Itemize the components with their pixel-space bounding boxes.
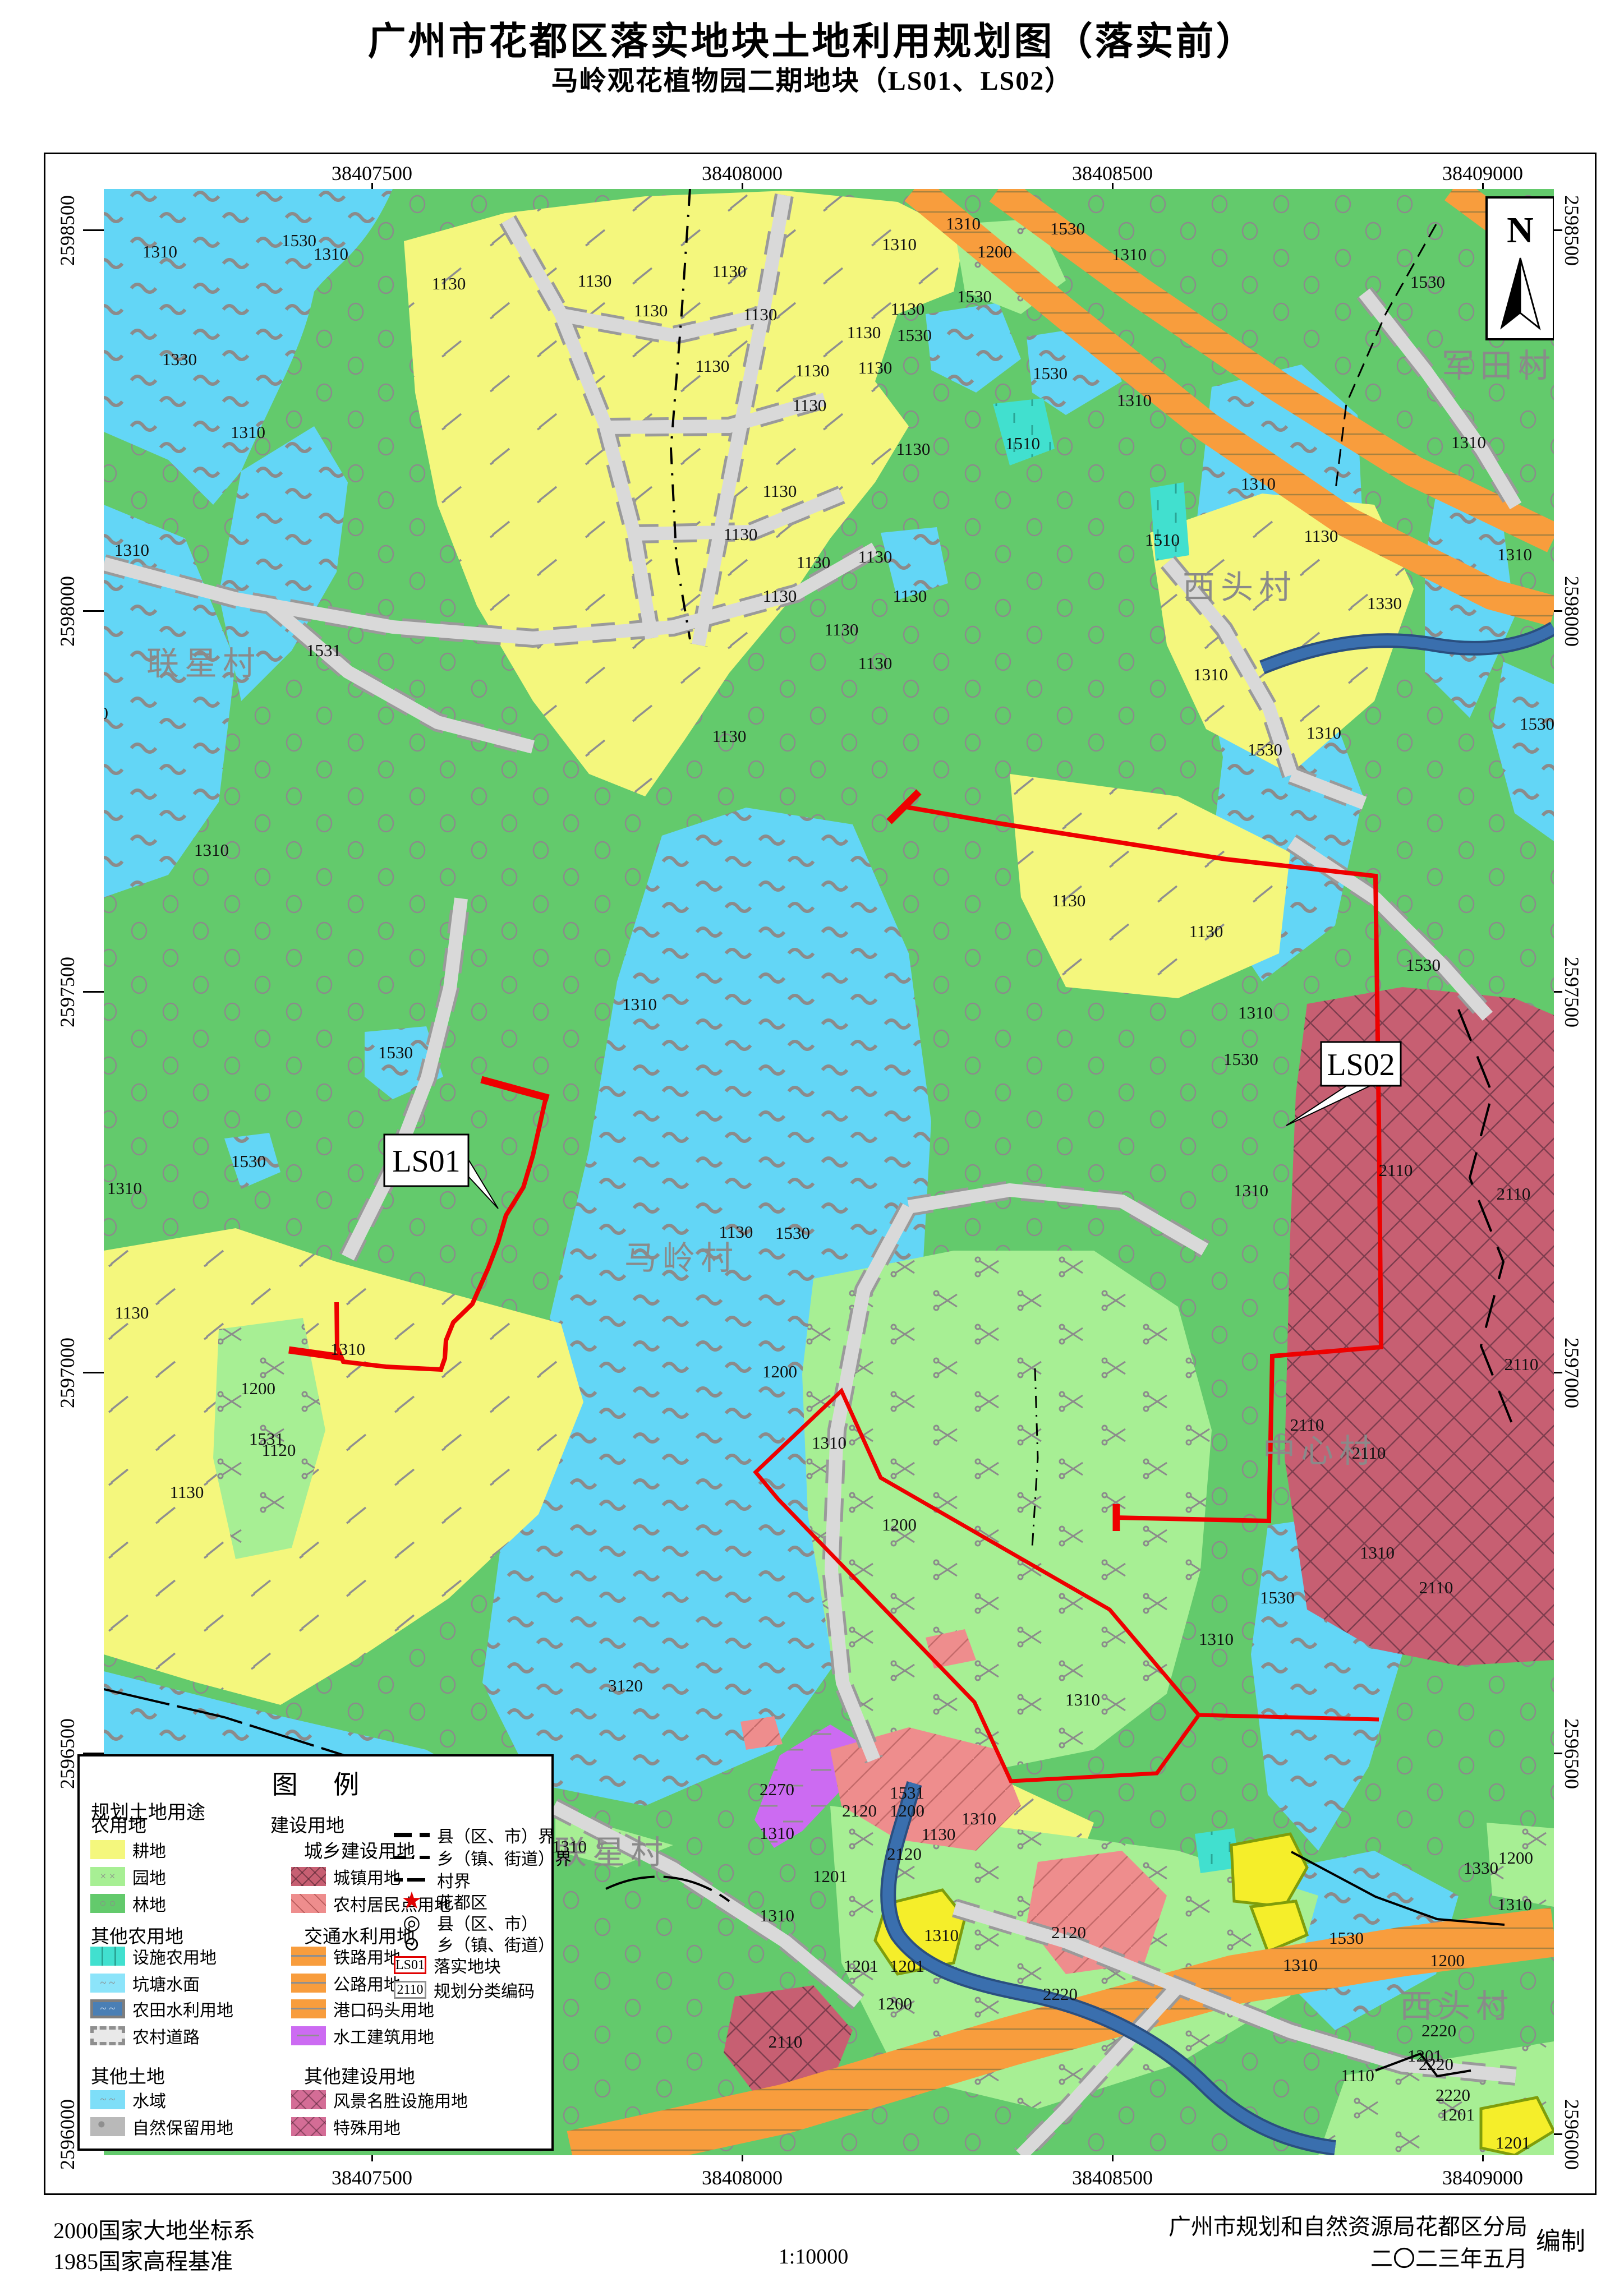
legend-item-pond: ~ ~坑塘水面 xyxy=(90,1972,200,1994)
landuse-code-label: 1530 xyxy=(775,1223,810,1243)
legend-swatch-forest: ○ ○ xyxy=(90,1894,125,1913)
legend-item-label: 规划分类编码 xyxy=(434,1977,535,2002)
landuse-code-label: 1201 xyxy=(1496,2133,1530,2152)
landuse-code-label: 1530 xyxy=(378,1043,413,1062)
landuse-code-label: 1200 xyxy=(877,1994,912,2013)
landuse-code-label: 1310 xyxy=(194,840,229,860)
landuse-code-label: 1130 xyxy=(724,524,758,544)
map-scale: 1:10000 xyxy=(718,2244,909,2269)
legend-swatch-irrigation: ~ ~ xyxy=(90,1999,125,2018)
landuse-code-label: 1530 xyxy=(1248,740,1282,759)
landuse-code-label: 1510 xyxy=(1005,434,1040,453)
landuse-code-label: 1201 xyxy=(1407,2046,1442,2066)
landuse-code-label: 1130 xyxy=(170,1482,204,1502)
legend-item-town-seat: ⊙乡（镇、街道） xyxy=(394,1933,555,1955)
landuse-code-label: 1310 xyxy=(1283,1955,1318,1975)
grid-y-label-left: 2596000 xyxy=(56,2084,79,2185)
legend-header-row: 其他土地 xyxy=(91,2064,165,2086)
legend-section-建设用地: 建设用地 xyxy=(270,1810,344,1837)
landuse-code-label: 1310 xyxy=(142,242,177,261)
landuse-code-label: 2220 xyxy=(1436,2085,1470,2105)
grid-x-label-top: 38409000 xyxy=(1432,162,1533,185)
landuse-code-label: 1310 xyxy=(314,244,348,264)
landuse-code-label: 2110 xyxy=(769,2032,803,2051)
legend-item-label: 县（区、市）界 xyxy=(437,1823,555,1847)
legend-item-nature: 自然保留用地 xyxy=(90,2115,233,2138)
landuse-code-label: 1120 xyxy=(262,1440,296,1460)
landuse-code-label: 1530 xyxy=(1520,714,1554,734)
landuse-code-label: 1530 xyxy=(1329,1928,1364,1948)
legend-item-label: 坑塘水面 xyxy=(132,1971,200,1995)
landuse-code-label: 2110 xyxy=(1419,1578,1453,1597)
legend-item-label: 特殊用地 xyxy=(333,2114,401,2139)
grid-x-label-bottom: 38407500 xyxy=(321,2166,422,2189)
legend-line-village xyxy=(394,1878,430,1882)
landuse-code-label: 1130 xyxy=(922,1824,956,1844)
legend-item-county-seat: ◎县（区、市） xyxy=(394,1911,538,1934)
landuse-code-label: 1130 xyxy=(1052,891,1086,910)
landuse-code-label: 1130 xyxy=(115,1303,149,1322)
landuse-code-label: 1310 xyxy=(1199,1629,1234,1649)
grid-x-label-bottom: 38408000 xyxy=(692,2166,793,2189)
landuse-code-label: 1130 xyxy=(858,358,892,377)
village-label: 军田村 xyxy=(1442,348,1554,384)
legend-item-scenic: 风景名胜设施用地 xyxy=(291,2088,468,2111)
map-date: 二〇二三年五月 xyxy=(1370,2240,1528,2273)
landuse-code-label: 1530 xyxy=(1223,1049,1258,1069)
legend-section-其他建设用地: 其他建设用地 xyxy=(304,2062,415,2088)
village-label: 西头村 xyxy=(1183,569,1297,606)
landuse-code-label: 2110 xyxy=(1379,1160,1413,1180)
legend-item-village: 村界 xyxy=(394,1869,471,1891)
grid-tick xyxy=(83,229,105,231)
landuse-code-label: 1530 xyxy=(957,287,992,306)
landuse-code-label: 1200 xyxy=(977,242,1012,261)
legend-item-code: 2110规划分类编码 xyxy=(394,1979,535,2001)
landuse-code-label: 1310 xyxy=(882,234,917,254)
landuse-code-label: 1130 xyxy=(893,586,927,606)
legend-item-special: 特殊用地 xyxy=(291,2115,401,2138)
landuse-code-label: 1201 xyxy=(813,1866,848,1886)
legend-item-plot: LS01落实地块 xyxy=(394,1954,501,1976)
landuse-code-label: 1130 xyxy=(712,261,747,281)
legend-item-label: 自然保留用地 xyxy=(132,2114,233,2139)
landuse-code-label: 1530 xyxy=(1406,955,1441,975)
legend-item-label: 城镇用地 xyxy=(333,1864,401,1889)
legend-item-label: 水工建筑用地 xyxy=(333,2023,434,2048)
legend-item-cultivated: 耕地 xyxy=(90,1838,166,1861)
landuse-code-label: 1310 xyxy=(1193,665,1228,684)
legend-header-row: 建设用地 xyxy=(270,1813,344,1835)
grid-y-label-right: 2598000 xyxy=(1560,561,1584,662)
legend-item-label: 农村道路 xyxy=(132,2023,200,2048)
grid-y-label-right: 2598500 xyxy=(1560,180,1584,281)
landuse-code-label: 1130 xyxy=(634,301,668,320)
legend-item-label: 林地 xyxy=(132,1891,166,1916)
landuse-code-label: 1130 xyxy=(763,586,797,606)
legend-item-road: 农村道路 xyxy=(90,2025,200,2047)
landuse-code-label: 1510 xyxy=(1145,530,1180,550)
legend-item-hydraulic: 水工建筑用地 xyxy=(291,2025,434,2047)
legend-swatch-highway xyxy=(291,1974,326,1993)
landuse-code-label: 1200 xyxy=(762,1362,797,1381)
legend-swatch-scenic xyxy=(291,2090,326,2109)
landuse-code-label: 1310 xyxy=(330,1339,365,1359)
legend-item-forest: ○ ○林地 xyxy=(90,1892,166,1915)
grid-x-label-top: 38408000 xyxy=(692,162,793,185)
grid-tick xyxy=(83,991,105,993)
landuse-code-label: 1310 xyxy=(1241,474,1276,494)
landuse-code-label: 1130 xyxy=(825,620,859,639)
legend-item-port: 港口码头用地 xyxy=(291,1998,434,2020)
grid-y-label-right: 2597500 xyxy=(1560,942,1584,1043)
landuse-code-label: 1330 xyxy=(1464,1858,1498,1878)
landuse-code-label: 1130 xyxy=(793,395,827,415)
legend-swatch-nature xyxy=(90,2117,125,2136)
landuse-code-label: 1530 xyxy=(1050,219,1085,238)
landuse-code-label: 1130 xyxy=(797,552,831,572)
landuse-code-label: 1310 xyxy=(1112,245,1147,264)
landuse-code-label: 1310 xyxy=(231,422,265,442)
landuse-code-label: 1310 xyxy=(812,1433,846,1453)
landuse-code-label: 1310 xyxy=(114,540,149,560)
landuse-code-label: 2220 xyxy=(1043,1984,1078,2004)
landuse-code-label: 1130 xyxy=(578,271,612,291)
landuse-code-label: 2110 xyxy=(1497,1184,1531,1204)
legend-item-label: 风景名胜设施用地 xyxy=(333,2087,468,2112)
landuse-code-label: 1130 xyxy=(896,439,931,459)
legend-item-label: 乡（镇、街道）界 xyxy=(437,1845,572,1870)
landuse-code-label: 1130 xyxy=(719,1222,753,1242)
grid-y-label-right: 2597000 xyxy=(1560,1322,1584,1423)
legend-item-township: 乡（镇、街道）界 xyxy=(394,1846,572,1869)
legend-swatch-pond: ~ ~ xyxy=(90,1974,125,1993)
landuse-code-label: 1310 xyxy=(1065,1690,1100,1709)
plot-callout-label: LS02 xyxy=(1327,1048,1395,1082)
legend-swatch-waterbody: ~ ~ xyxy=(90,2090,125,2109)
landuse-code-label: 2110 xyxy=(1290,1415,1324,1435)
landuse-code-label: 1130 xyxy=(1304,526,1338,546)
landuse-code-label: 1130 xyxy=(743,305,778,324)
legend-line-township xyxy=(394,1856,430,1859)
legend-item-label: 水域 xyxy=(132,2087,166,2112)
legend-box-plot: LS01 xyxy=(394,1956,426,1974)
legend-item-county: 县（区、市）界 xyxy=(394,1824,555,1846)
landuse-code-label: 1200 xyxy=(241,1378,275,1398)
village-label: 联星村 xyxy=(146,646,261,682)
north-arrow: N xyxy=(1487,197,1554,339)
legend-line-county xyxy=(394,1833,430,1837)
legend-item-star: ★花都区 xyxy=(394,1890,487,1912)
legend-item-highway: 公路用地 xyxy=(291,1972,401,1994)
grid-y-label-left: 2598000 xyxy=(56,561,79,662)
legend-swatch-port xyxy=(291,1999,326,2018)
datum-line1: 2000国家大地坐标系 xyxy=(53,2212,255,2245)
legend-swatch-special xyxy=(291,2117,326,2136)
legend-swatch-facility xyxy=(90,1947,125,1966)
landuse-code-label: 1310 xyxy=(1117,390,1152,410)
landuse-code-label: 1130 xyxy=(696,356,730,376)
legend-swatch-orchard: × × xyxy=(90,1867,125,1886)
village-label: 西头村 xyxy=(1400,1988,1514,2025)
legend-swatch-cultivated xyxy=(90,1840,125,1859)
landuse-code-label: 1130 xyxy=(712,726,747,746)
landuse-code-label: 1310 xyxy=(622,994,657,1014)
landuse-code-label: 1310 xyxy=(1306,723,1341,743)
landuse-code-label: 1530 xyxy=(282,230,316,250)
landuse-code-label: 1130 xyxy=(795,361,830,380)
landuse-code-label: 3120 xyxy=(608,1676,643,1695)
landuse-code-label: 1110 xyxy=(1341,2066,1374,2085)
landuse-code-label: 1310 xyxy=(1234,1181,1268,1200)
landuse-code-label: 2110 xyxy=(1505,1354,1539,1374)
landuse-code-label: 1310 xyxy=(961,1809,996,1828)
legend-swatch-road xyxy=(90,2026,125,2045)
landuse-code-label: 1200 xyxy=(882,1515,917,1534)
grid-y-label-right: 2596500 xyxy=(1560,1703,1584,1804)
legend-item-label: 农田水利用地 xyxy=(132,1997,233,2021)
grid-y-label-right: 2596000 xyxy=(1560,2084,1584,2185)
landuse-code-label: 1130 xyxy=(858,547,892,566)
legend-panel: 图 例 规划土地用途 农用地耕地× ×园地○ ○林地其他农用地设施农用地~ ~坑… xyxy=(77,1754,554,2151)
landuse-code-label: 1130 xyxy=(763,481,797,501)
landuse-code-label: 1310 xyxy=(1497,545,1532,564)
landuse-code-label: 2120 xyxy=(842,1801,877,1820)
grid-y-label-left: 2597500 xyxy=(56,942,79,1043)
grid-x-label-top: 38408500 xyxy=(1062,162,1163,185)
grid-tick xyxy=(83,610,105,612)
landuse-code-label: 1310 xyxy=(924,1925,959,1945)
landuse-code-label: 1310 xyxy=(107,1178,142,1198)
plot-callout-label: LS01 xyxy=(392,1144,460,1179)
landuse-code-label: 1531 xyxy=(890,1783,924,1802)
svg-text:N: N xyxy=(1507,210,1534,251)
landuse-code-label: 1310 xyxy=(1238,1003,1273,1022)
compiled-by: 编制 xyxy=(1536,2221,1585,2257)
legend-item-label: 园地 xyxy=(132,1864,166,1889)
page-title: 广州市花都区落实地块土地利用规划图（落实前） xyxy=(0,10,1624,66)
landuse-code-label: 1130 xyxy=(432,274,466,293)
landuse-code-label: 1201 xyxy=(844,1956,878,1976)
grid-x-label-bottom: 38408500 xyxy=(1062,2166,1163,2189)
landuse-code-label: 1530 xyxy=(1260,1588,1295,1607)
legend-item-waterbody: ~ ~水域 xyxy=(90,2088,166,2111)
grid-x-label-bottom: 38409000 xyxy=(1432,2166,1533,2189)
landuse-code-label: 1530 xyxy=(1033,363,1068,383)
legend-header-row: 农用地 xyxy=(91,1813,146,1835)
legend-item-label: 公路用地 xyxy=(333,1971,401,1995)
landuse-code-label: 1130 xyxy=(891,299,925,319)
legend-header-row: 其他农用地 xyxy=(91,1924,183,1946)
landuse-code-label: 1330 xyxy=(1367,593,1402,613)
landuse-code-label: 1130 xyxy=(1189,921,1223,941)
landuse-code-label: 1310 xyxy=(760,1823,794,1843)
landuse-code-label: 1530 xyxy=(231,1151,266,1171)
landuse-code-label: 2120 xyxy=(887,1844,922,1864)
grid-x-label-top: 38407500 xyxy=(321,162,422,185)
landuse-code-label: 1531 xyxy=(306,640,341,660)
legend-item-irrigation: ~ ~农田水利用地 xyxy=(90,1998,233,2020)
village-label: 马岭村 xyxy=(624,1240,739,1276)
legend-item-rail: 铁路用地 xyxy=(291,1945,401,1967)
legend-box-code: 2110 xyxy=(394,1981,426,1999)
legend-item-label: 设施农用地 xyxy=(132,1944,217,1968)
landuse-code-label: 2110 xyxy=(1352,1443,1386,1463)
landuse-code-label: 2120 xyxy=(1051,1922,1086,1942)
grid-y-label-left: 2597000 xyxy=(56,1322,79,1423)
landuse-code-label: 1201 xyxy=(890,1956,924,1976)
agency: 广州市规划和自然资源局花都区分局 xyxy=(1168,2209,1528,2241)
legend-header-row: 其他建设用地 xyxy=(304,2064,415,2086)
landuse-code-label: 2270 xyxy=(760,1779,794,1799)
landuse-code-label: 1130 xyxy=(847,322,881,342)
grid-y-label-left: 2596500 xyxy=(56,1703,79,1804)
grid-y-label-left: 2598500 xyxy=(56,180,79,281)
legend-swatch-town xyxy=(291,1867,326,1886)
landuse-code-label: 1200 xyxy=(1430,1951,1465,1970)
legend-symbol-county-seat-icon: ◎ xyxy=(394,1912,430,1933)
legend-item-label: 落实地块 xyxy=(434,1953,501,1977)
legend-item-label: 耕地 xyxy=(132,1837,166,1862)
legend-section-农用地: 农用地 xyxy=(91,1810,146,1837)
legend-section-其他土地: 其他土地 xyxy=(91,2062,165,2088)
landuse-code-label: 1530 xyxy=(1410,272,1445,292)
landuse-code-label: 1310 xyxy=(760,1906,794,1925)
landuse-code-label: 1200 xyxy=(1498,1848,1533,1868)
legend-title: 图 例 xyxy=(80,1764,551,1801)
page-subtitle: 马岭观花植物园二期地块（LS01、LS02） xyxy=(0,58,1624,98)
landuse-code-label: 1310 xyxy=(1360,1543,1395,1562)
landuse-code-label: 1530 xyxy=(897,325,932,345)
grid-tick xyxy=(83,1372,105,1373)
legend-item-orchard: × ×园地 xyxy=(90,1865,166,1888)
landuse-code-label: 1310 xyxy=(1451,432,1486,452)
legend-symbol-town-seat-icon: ⊙ xyxy=(394,1934,430,1954)
datum-line2: 1985国家高程基准 xyxy=(53,2243,233,2276)
legend-item-label: 铁路用地 xyxy=(333,1944,401,1968)
legend-swatch-rail xyxy=(291,1947,326,1966)
landuse-code-label: 1200 xyxy=(890,1801,924,1820)
legend-item-facility: 设施农用地 xyxy=(90,1945,217,1967)
landuse-code-label: 1310 xyxy=(1497,1894,1532,1914)
landuse-code-label: 1310 xyxy=(946,214,981,233)
landuse-code-label: 2220 xyxy=(1421,2021,1456,2040)
landuse-code-label: 1530 xyxy=(104,703,108,723)
landuse-code-label: 1201 xyxy=(1440,2105,1475,2124)
landuse-code-label: 1130 xyxy=(858,653,892,673)
legend-swatch-hydraulic xyxy=(291,2026,326,2045)
legend-item-town: 城镇用地 xyxy=(291,1865,401,1888)
legend-swatch-rural xyxy=(291,1894,326,1913)
legend-symbol-star-icon: ★ xyxy=(394,1891,430,1911)
landuse-code-label: 1330 xyxy=(162,349,197,369)
